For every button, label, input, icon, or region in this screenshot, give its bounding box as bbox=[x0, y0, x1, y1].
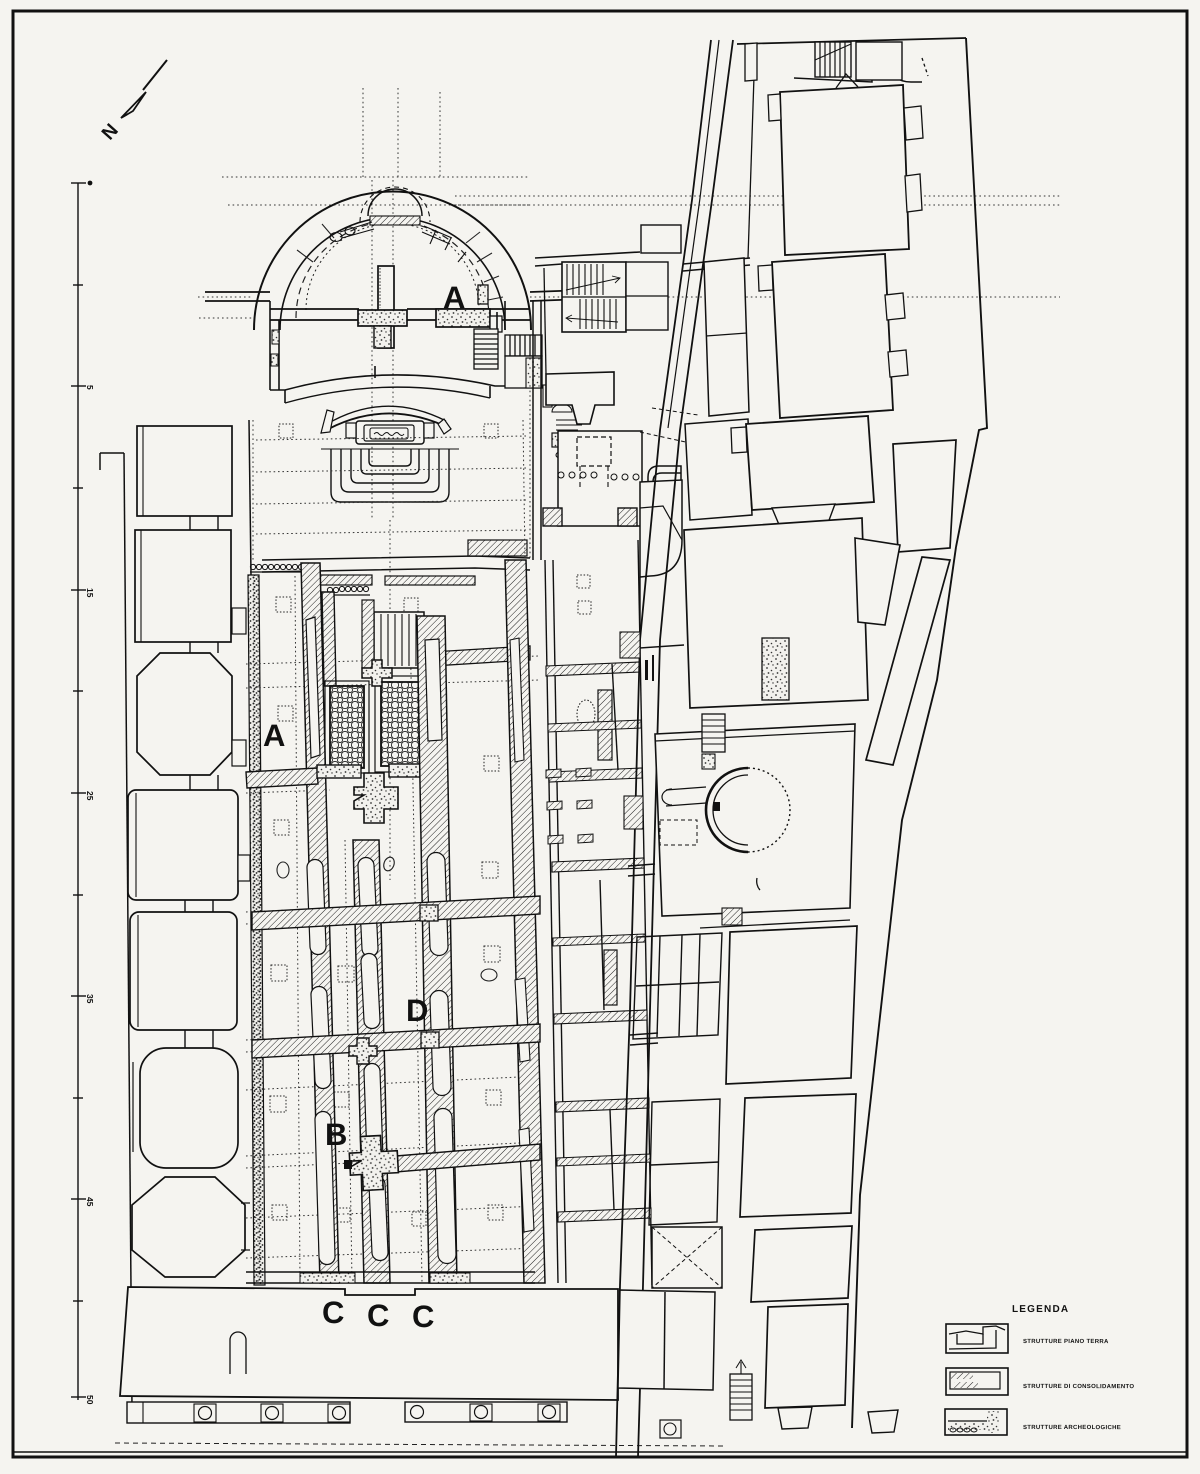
svg-text:STRUTTURE DI CONSOLIDAMENTO: STRUTTURE DI CONSOLIDAMENTO bbox=[1023, 1384, 1134, 1390]
svg-text:STRUTTURE PIANO TERRA: STRUTTURE PIANO TERRA bbox=[1023, 1339, 1109, 1345]
svg-text:LEGENDA: LEGENDA bbox=[1012, 1304, 1069, 1315]
svg-text:50: 50 bbox=[85, 1395, 95, 1405]
svg-text:25: 25 bbox=[85, 791, 95, 801]
svg-text:C: C bbox=[412, 1299, 434, 1334]
svg-text:B: B bbox=[325, 1117, 347, 1152]
svg-text:N: N bbox=[98, 120, 123, 144]
svg-text:5: 5 bbox=[85, 385, 95, 390]
svg-text:A: A bbox=[443, 280, 465, 315]
svg-text:STRUTTURE ARCHEOLOGICHE: STRUTTURE ARCHEOLOGICHE bbox=[1023, 1425, 1121, 1431]
svg-text:C: C bbox=[322, 1295, 344, 1330]
svg-text:D: D bbox=[406, 993, 428, 1028]
svg-text:15: 15 bbox=[85, 588, 95, 598]
svg-text:35: 35 bbox=[85, 994, 95, 1004]
svg-text:45: 45 bbox=[85, 1197, 95, 1207]
svg-text:C: C bbox=[367, 1298, 389, 1333]
svg-text:A: A bbox=[263, 718, 285, 753]
